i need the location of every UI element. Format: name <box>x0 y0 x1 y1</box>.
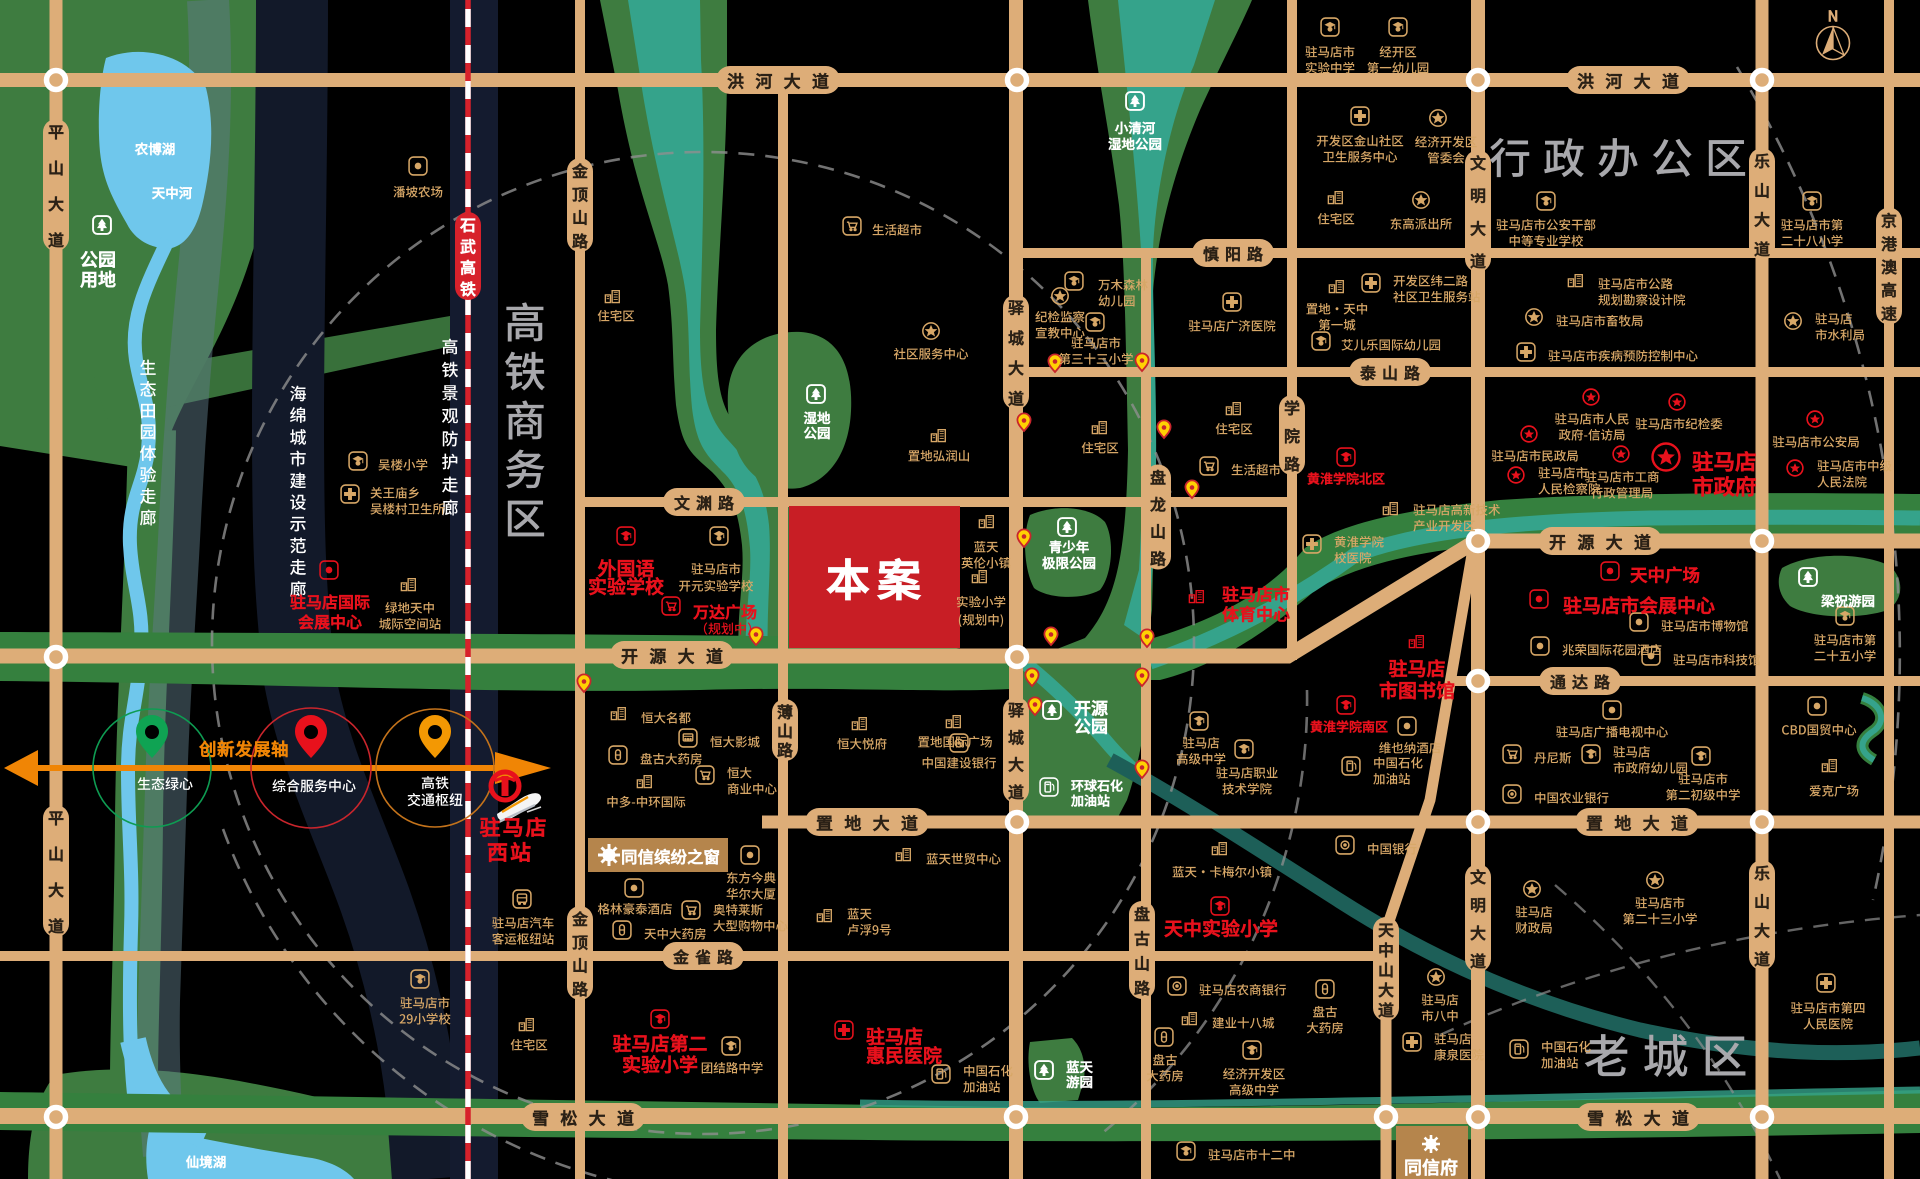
svg-text:市八中: 市八中 <box>1421 1006 1459 1025</box>
svg-text:住宅区: 住宅区 <box>1317 209 1355 228</box>
svg-text:实验学校: 实验学校 <box>588 573 665 600</box>
svg-text:极限公园: 极限公园 <box>1042 552 1096 572</box>
svg-text:住宅区: 住宅区 <box>1215 419 1253 438</box>
svg-text:仙境湖: 仙境湖 <box>185 1151 227 1171</box>
svg-text:盘古大药房: 盘古大药房 <box>640 749 703 768</box>
svg-text:通达路: 通达路 <box>1550 669 1616 693</box>
svg-text:第二初级中学: 第二初级中学 <box>1665 785 1740 804</box>
svg-text:薄山路: 薄山路 <box>777 699 794 761</box>
svg-text:英伦小镇: 英伦小镇 <box>961 553 1012 572</box>
svg-text:实验小学: 实验小学 <box>622 1051 698 1078</box>
svg-text:黄淮学院北区: 黄淮学院北区 <box>1307 469 1385 488</box>
svg-text:体育中心: 体育中心 <box>1221 601 1290 626</box>
svg-text:天中大药房: 天中大药房 <box>644 924 707 943</box>
svg-text:大药房: 大药房 <box>1146 1066 1184 1085</box>
svg-text:蓝天世贸中心: 蓝天世贸中心 <box>926 849 1002 868</box>
svg-text:天中河: 天中河 <box>151 182 193 202</box>
svg-text:(规划中): (规划中) <box>958 610 1004 629</box>
svg-text:建业十八城: 建业十八城 <box>1212 1013 1275 1032</box>
svg-text:产业开发区: 产业开发区 <box>1413 516 1476 535</box>
svg-text:海绵城市建设示范走廊: 海绵城市建设示范走廊 <box>290 380 307 600</box>
svg-text:金雀路: 金雀路 <box>672 944 739 968</box>
svg-text:惠民医院: 惠民医院 <box>866 1042 942 1069</box>
svg-text:高铁景观防护走廊: 高铁景观防护走廊 <box>442 333 459 519</box>
svg-text:人民法院: 人民法院 <box>1817 472 1868 491</box>
svg-text:置地大道: 置地大道 <box>1586 810 1699 835</box>
svg-text:黄淮学院南区: 黄淮学院南区 <box>1310 717 1388 736</box>
svg-text:雪松大道: 雪松大道 <box>532 1105 645 1130</box>
svg-text:商业中心: 商业中心 <box>727 779 778 798</box>
svg-text:格林豪泰酒店: 格林豪泰酒店 <box>597 899 672 918</box>
svg-text:老城区: 老城区 <box>1584 1021 1761 1087</box>
svg-text:（规划中）: （规划中） <box>695 619 760 638</box>
svg-text:交通枢纽: 交通枢纽 <box>407 790 463 810</box>
svg-text:恒大名都: 恒大名都 <box>641 708 692 727</box>
svg-text:驻马店市十二中: 驻马店市十二中 <box>1208 1145 1296 1164</box>
svg-text:公园: 公园 <box>1074 713 1108 738</box>
svg-text:市政府: 市政府 <box>1692 471 1757 502</box>
svg-text:盘古山路: 盘古山路 <box>1134 901 1151 999</box>
svg-text:农博湖: 农博湖 <box>134 138 176 158</box>
svg-text:金顶山路: 金顶山路 <box>571 158 589 252</box>
svg-text:置地弘润山: 置地弘润山 <box>908 446 971 465</box>
svg-text:幼儿园: 幼儿园 <box>1098 291 1136 310</box>
svg-text:市图书馆: 市图书馆 <box>1379 677 1455 704</box>
svg-text:恒大影城: 恒大影城 <box>710 732 761 751</box>
svg-text:驻马店市公安局: 驻马店市公安局 <box>1772 432 1860 451</box>
svg-text:驻马店市畜牧局: 驻马店市畜牧局 <box>1556 311 1644 330</box>
svg-text:技术学院: 技术学院 <box>1222 779 1273 798</box>
svg-text:住宅区: 住宅区 <box>597 306 635 325</box>
svg-text:湿地公园: 湿地公园 <box>1108 133 1162 153</box>
svg-text:恒大悦府: 恒大悦府 <box>837 734 887 753</box>
svg-text:卢浮9号: 卢浮9号 <box>847 920 892 939</box>
svg-text:本案: 本案 <box>826 545 928 609</box>
svg-text:加油站: 加油站 <box>1070 791 1110 810</box>
svg-text:金顶山路: 金顶山路 <box>571 906 589 1000</box>
svg-text:驻马店市纪检委: 驻马店市纪检委 <box>1635 414 1723 433</box>
svg-text:人民医院: 人民医院 <box>1803 1014 1854 1033</box>
svg-text:大药房: 大药房 <box>1306 1018 1344 1037</box>
svg-text:实验中学: 实验中学 <box>1305 58 1355 77</box>
svg-text:生态绿心: 生态绿心 <box>137 774 193 794</box>
svg-text:艾儿乐国际幼儿园: 艾儿乐国际幼儿园 <box>1341 335 1441 354</box>
svg-text:29小学校: 29小学校 <box>399 1009 451 1028</box>
svg-text:驻马店广播电视中心: 驻马店广播电视中心 <box>1556 722 1669 741</box>
svg-text:驻马店农商银行: 驻马店农商银行 <box>1199 980 1287 999</box>
svg-text:兆荣国际花园酒店: 兆荣国际花园酒店 <box>1562 640 1662 659</box>
svg-text:城际空间站: 城际空间站 <box>379 614 442 633</box>
svg-text:政府-信访局: 政府-信访局 <box>1559 425 1626 444</box>
svg-text:生态田园体验走廊: 生态田园体验走廊 <box>140 354 157 529</box>
svg-text:综合服务中心: 综合服务中心 <box>272 776 356 796</box>
svg-text:洪河大道: 洪河大道 <box>1577 68 1690 93</box>
svg-text:公园: 公园 <box>804 422 831 442</box>
svg-text:同信缤纷之窗: 同信缤纷之窗 <box>621 844 720 868</box>
svg-text:爱克广场: 爱克广场 <box>1809 781 1859 800</box>
svg-text:市政府幼儿园: 市政府幼儿园 <box>1613 758 1688 777</box>
svg-text:加油站: 加油站 <box>1373 769 1411 788</box>
svg-text:生活超市: 生活超市 <box>872 220 922 239</box>
svg-text:第一城: 第一城 <box>1318 315 1356 334</box>
svg-text:西站: 西站 <box>487 837 533 867</box>
svg-text:潘坡农场: 潘坡农场 <box>393 182 443 201</box>
svg-text:加油站: 加油站 <box>1541 1053 1579 1072</box>
svg-text:生活超市: 生活超市 <box>1231 460 1281 479</box>
svg-text:东高派出所: 东高派出所 <box>1390 214 1453 233</box>
svg-text:市水利局: 市水利局 <box>1815 325 1865 344</box>
svg-text:会展中心: 会展中心 <box>297 609 362 633</box>
svg-text:人民检察院: 人民检察院 <box>1538 479 1601 498</box>
svg-text:雪松大道: 雪松大道 <box>1587 1105 1700 1130</box>
svg-text:高级中学: 高级中学 <box>1229 1080 1279 1099</box>
svg-text:实验小学: 实验小学 <box>956 592 1006 611</box>
svg-text:二十五小学: 二十五小学 <box>1814 646 1877 665</box>
svg-text:住宅区: 住宅区 <box>510 1035 548 1054</box>
svg-text:慎阳路: 慎阳路 <box>1203 241 1269 265</box>
svg-text:第二十三小学: 第二十三小学 <box>1622 909 1697 928</box>
svg-text:驻马店市科技馆: 驻马店市科技馆 <box>1673 650 1761 669</box>
svg-text:加油站: 加油站 <box>963 1077 1001 1096</box>
svg-text:管委会: 管委会 <box>1427 148 1465 167</box>
svg-text:团结路中学: 团结路中学 <box>701 1058 764 1077</box>
svg-text:维也纳酒店: 维也纳酒店 <box>1379 738 1442 757</box>
svg-text:校医院: 校医院 <box>1334 548 1372 567</box>
svg-text:梁祝游园: 梁祝游园 <box>1820 590 1875 610</box>
svg-text:社区服务中心: 社区服务中心 <box>893 344 969 363</box>
svg-text:开元实验学校: 开元实验学校 <box>678 576 754 595</box>
svg-text:同信府: 同信府 <box>1404 1154 1458 1179</box>
svg-text:N: N <box>1827 6 1838 27</box>
svg-text:京港澳高速: 京港澳高速 <box>1880 208 1898 325</box>
svg-text:客运枢纽站: 客运枢纽站 <box>492 929 555 948</box>
svg-text:天中实验小学: 天中实验小学 <box>1164 915 1278 942</box>
svg-text:高铁商务区: 高铁商务区 <box>504 290 546 547</box>
svg-text:卫生服务中心: 卫生服务中心 <box>1322 147 1398 166</box>
svg-text:中国农业银行: 中国农业银行 <box>1534 788 1609 807</box>
svg-text:社区卫生服务站: 社区卫生服务站 <box>1393 287 1481 306</box>
svg-text:泰山路: 泰山路 <box>1359 360 1426 384</box>
svg-text:天中山大道: 天中山大道 <box>1377 917 1395 1021</box>
svg-text:中多-中环国际: 中多-中环国际 <box>606 792 686 811</box>
svg-text:蓝天·卡梅尔小镇: 蓝天·卡梅尔小镇 <box>1172 862 1273 881</box>
svg-text:游园: 游园 <box>1066 1071 1093 1091</box>
svg-text:规划勘察设计院: 规划勘察设计院 <box>1598 290 1686 309</box>
svg-text:用地: 用地 <box>79 266 116 292</box>
svg-text:第三十三小学: 第三十三小学 <box>1058 349 1133 368</box>
svg-text:驻马店广济医院: 驻马店广济医院 <box>1188 316 1276 335</box>
svg-text:学院路: 学院路 <box>1284 395 1301 475</box>
svg-text:大型购物中心: 大型购物中心 <box>713 916 789 935</box>
svg-text:文渊路: 文渊路 <box>673 490 740 514</box>
svg-text:驻马店市会展中心: 驻马店市会展中心 <box>1563 592 1715 619</box>
svg-text:开源大道: 开源大道 <box>621 643 734 668</box>
svg-text:石武高铁: 石武高铁 <box>459 212 477 300</box>
svg-text:中等专业学校: 中等专业学校 <box>1508 231 1584 250</box>
svg-text:创新发展轴: 创新发展轴 <box>198 737 289 762</box>
svg-text:住宅区: 住宅区 <box>1081 438 1119 457</box>
svg-text:中国建设银行: 中国建设银行 <box>921 753 996 772</box>
svg-text:二十八小学: 二十八小学 <box>1781 231 1844 250</box>
svg-text:康泉医院: 康泉医院 <box>1434 1045 1485 1064</box>
svg-text:CBD国贸中心: CBD国贸中心 <box>1781 720 1857 739</box>
svg-text:驻马店市疾病预防控制中心: 驻马店市疾病预防控制中心 <box>1548 346 1699 365</box>
svg-text:中国银行: 中国银行 <box>1367 839 1417 858</box>
svg-text:第一幼儿园: 第一幼儿园 <box>1367 58 1430 77</box>
svg-text:财政局: 财政局 <box>1515 918 1553 937</box>
svg-text:开源大道: 开源大道 <box>1549 529 1662 554</box>
svg-text:天中广场: 天中广场 <box>1630 563 1700 588</box>
svg-text:吴楼村卫生所: 吴楼村卫生所 <box>370 499 446 518</box>
svg-text:行政办公区: 行政办公区 <box>1489 126 1759 187</box>
svg-text:置地大道: 置地大道 <box>816 810 929 835</box>
svg-text:丹尼斯: 丹尼斯 <box>1534 748 1572 767</box>
svg-text:洪河大道: 洪河大道 <box>727 68 840 93</box>
svg-text:吴楼小学: 吴楼小学 <box>378 455 428 474</box>
